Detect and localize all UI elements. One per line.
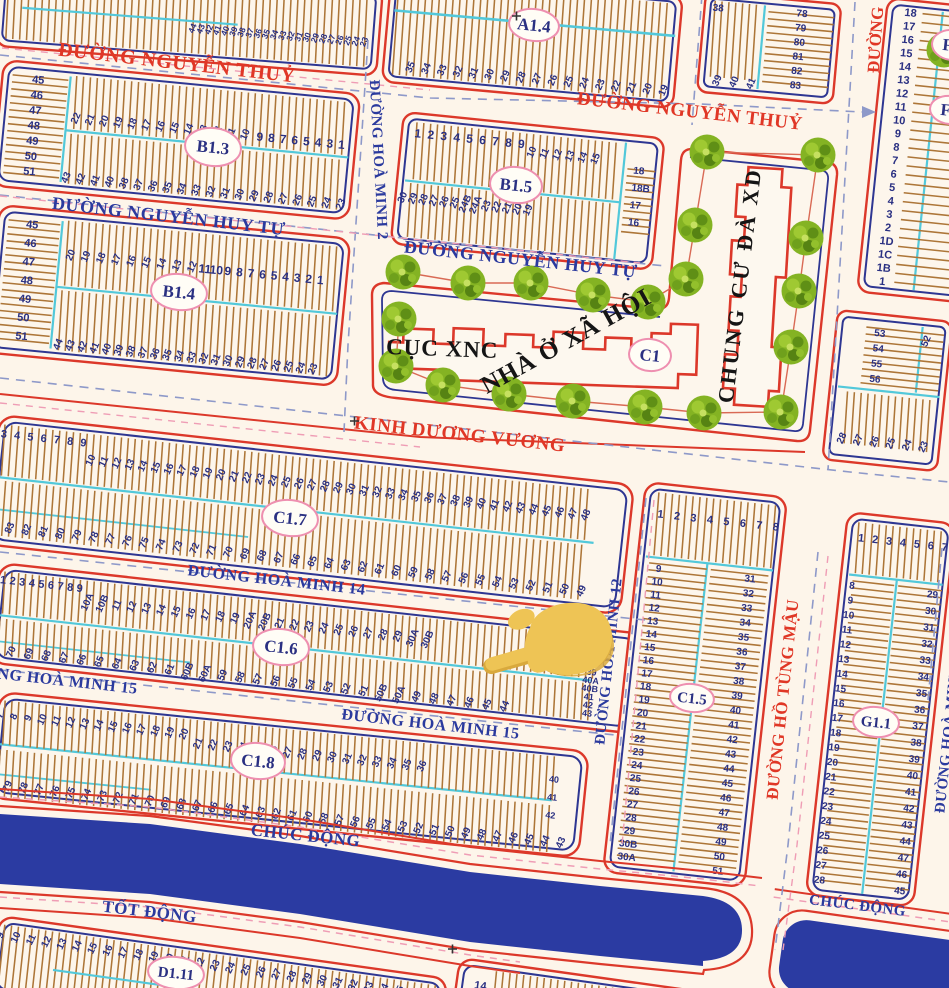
svg-text:81: 81 (792, 51, 805, 63)
svg-text:54: 54 (872, 343, 885, 355)
svg-text:7: 7 (756, 519, 763, 532)
svg-text:10: 10 (842, 610, 855, 622)
svg-text:26: 26 (628, 786, 641, 798)
svg-text:30B: 30B (618, 838, 637, 851)
svg-text:13: 13 (897, 74, 910, 87)
svg-text:2: 2 (9, 575, 16, 588)
svg-text:34: 34 (739, 617, 752, 629)
svg-text:41: 41 (728, 720, 741, 732)
svg-text:13: 13 (838, 654, 851, 666)
svg-text:18: 18 (829, 727, 842, 739)
svg-text:8: 8 (772, 521, 779, 534)
svg-text:C1.8: C1.8 (240, 750, 275, 772)
svg-text:A1.4: A1.4 (516, 14, 552, 36)
svg-text:1: 1 (879, 276, 886, 289)
svg-text:42: 42 (726, 734, 739, 746)
svg-text:1: 1 (857, 532, 864, 545)
svg-text:C1.7: C1.7 (272, 507, 308, 529)
svg-text:31: 31 (744, 573, 757, 585)
svg-text:21: 21 (825, 772, 838, 784)
svg-text:47: 47 (718, 807, 731, 819)
svg-text:83: 83 (789, 80, 802, 92)
svg-text:2: 2 (673, 510, 680, 523)
svg-text:36: 36 (736, 646, 749, 658)
svg-text:8: 8 (66, 582, 73, 595)
svg-text:1C: 1C (877, 248, 892, 261)
svg-text:F1: F1 (942, 35, 949, 56)
svg-text:33: 33 (919, 655, 932, 667)
svg-text:C1.6: C1.6 (263, 636, 298, 658)
svg-text:27: 27 (626, 799, 639, 811)
svg-text:G1.1: G1.1 (860, 714, 892, 733)
svg-text:13: 13 (647, 616, 660, 628)
svg-text:80: 80 (793, 37, 806, 49)
svg-text:19: 19 (638, 694, 651, 706)
svg-text:B1.5: B1.5 (499, 174, 533, 196)
svg-text:5: 5 (723, 516, 730, 529)
svg-text:82: 82 (791, 66, 804, 78)
svg-text:6: 6 (40, 433, 47, 446)
svg-text:C1.5: C1.5 (676, 690, 707, 709)
svg-text:51: 51 (23, 165, 36, 178)
svg-text:40: 40 (729, 705, 742, 717)
svg-text:47: 47 (22, 256, 35, 269)
svg-text:11: 11 (894, 101, 907, 114)
svg-text:36: 36 (914, 704, 927, 716)
svg-text:37: 37 (734, 661, 747, 673)
svg-text:46: 46 (720, 793, 733, 805)
svg-text:56: 56 (869, 374, 882, 386)
svg-text:17: 17 (831, 713, 844, 725)
svg-text:46: 46 (30, 89, 43, 102)
svg-text:10: 10 (893, 114, 906, 127)
svg-text:7: 7 (53, 434, 60, 447)
svg-text:3: 3 (886, 209, 893, 222)
svg-text:28: 28 (625, 812, 638, 824)
svg-text:17: 17 (902, 20, 915, 33)
svg-text:20: 20 (636, 707, 649, 719)
svg-text:1B: 1B (876, 262, 891, 275)
svg-text:39: 39 (731, 690, 744, 702)
svg-text:23: 23 (821, 801, 834, 813)
svg-text:44: 44 (723, 763, 736, 775)
svg-text:25: 25 (629, 773, 642, 785)
svg-text:15: 15 (644, 642, 657, 654)
svg-text:16: 16 (627, 217, 640, 229)
svg-text:51: 51 (15, 330, 28, 343)
svg-text:38: 38 (712, 3, 725, 15)
svg-text:11: 11 (650, 590, 662, 602)
svg-text:35: 35 (737, 632, 750, 644)
svg-text:45: 45 (32, 74, 45, 87)
svg-text:55: 55 (870, 358, 883, 370)
svg-text:41: 41 (904, 787, 917, 799)
svg-text:18: 18 (633, 165, 646, 177)
svg-text:43: 43 (582, 708, 593, 719)
svg-text:48: 48 (20, 274, 33, 287)
svg-text:46: 46 (895, 869, 908, 881)
svg-text:7: 7 (57, 580, 64, 593)
svg-text:18: 18 (639, 681, 652, 693)
svg-text:F1: F1 (940, 100, 949, 121)
svg-text:6: 6 (890, 168, 897, 181)
svg-text:50: 50 (713, 851, 726, 863)
svg-text:11: 11 (841, 624, 853, 636)
svg-text:CỤC XNC: CỤC XNC (386, 334, 499, 363)
svg-text:40: 40 (549, 774, 560, 785)
svg-text:10: 10 (209, 262, 224, 277)
svg-text:14: 14 (474, 979, 489, 988)
svg-text:39: 39 (908, 754, 921, 766)
svg-text:12: 12 (648, 603, 661, 615)
svg-text:34: 34 (917, 671, 930, 683)
svg-text:35: 35 (915, 688, 928, 700)
svg-text:25: 25 (818, 830, 831, 842)
svg-text:3: 3 (885, 535, 892, 548)
svg-text:16: 16 (833, 698, 846, 710)
svg-text:B1.4: B1.4 (162, 281, 197, 303)
svg-text:2: 2 (884, 222, 891, 235)
svg-text:49: 49 (715, 836, 728, 848)
svg-text:5: 5 (27, 431, 34, 444)
svg-text:14: 14 (898, 61, 912, 74)
svg-text:32: 32 (921, 639, 934, 651)
svg-text:38: 38 (733, 676, 746, 688)
svg-text:6: 6 (739, 518, 746, 531)
svg-text:7: 7 (891, 155, 898, 168)
svg-text:15: 15 (834, 683, 847, 695)
svg-text:5: 5 (888, 182, 895, 195)
svg-text:26: 26 (816, 845, 829, 857)
svg-text:42: 42 (545, 810, 556, 821)
svg-text:37: 37 (912, 721, 925, 733)
svg-text:47: 47 (897, 852, 910, 864)
svg-text:9: 9 (80, 437, 87, 450)
svg-text:19: 19 (828, 742, 841, 754)
svg-text:20: 20 (826, 757, 839, 769)
svg-text:5: 5 (913, 538, 920, 551)
svg-text:16: 16 (642, 655, 655, 667)
svg-text:78: 78 (796, 8, 809, 20)
svg-text:49: 49 (18, 293, 31, 306)
svg-text:17: 17 (641, 668, 654, 680)
svg-text:24: 24 (820, 816, 833, 828)
svg-text:8: 8 (66, 436, 73, 449)
svg-text:9: 9 (76, 583, 83, 596)
svg-text:21: 21 (635, 721, 648, 733)
svg-text:29: 29 (623, 825, 636, 837)
svg-text:41: 41 (547, 792, 558, 803)
svg-text:3: 3 (18, 576, 25, 589)
svg-text:12: 12 (839, 639, 852, 651)
svg-text:2: 2 (871, 534, 878, 547)
svg-text:50: 50 (17, 311, 30, 324)
svg-text:45: 45 (721, 778, 734, 790)
svg-text:10: 10 (651, 576, 664, 588)
svg-text:50: 50 (24, 150, 37, 163)
svg-text:6: 6 (47, 579, 54, 592)
svg-text:38: 38 (910, 737, 923, 749)
svg-text:49: 49 (26, 135, 39, 148)
svg-text:47: 47 (29, 104, 42, 117)
svg-text:C1: C1 (639, 345, 662, 366)
svg-text:1: 1 (657, 508, 664, 521)
svg-text:B1.3: B1.3 (196, 136, 230, 158)
svg-text:28: 28 (813, 875, 826, 887)
svg-text:43: 43 (901, 820, 914, 832)
svg-text:3: 3 (0, 428, 7, 441)
svg-text:1D: 1D (879, 235, 894, 248)
svg-text:6: 6 (927, 540, 934, 553)
svg-text:18: 18 (904, 7, 917, 20)
svg-text:17: 17 (629, 200, 642, 212)
svg-text:46: 46 (24, 237, 37, 250)
svg-text:16: 16 (901, 34, 914, 47)
svg-text:15: 15 (900, 47, 913, 60)
svg-text:27: 27 (815, 860, 828, 872)
svg-text:33: 33 (741, 603, 754, 615)
svg-text:22: 22 (823, 786, 836, 798)
svg-text:43: 43 (724, 749, 737, 761)
svg-text:79: 79 (795, 23, 808, 35)
svg-text:14: 14 (645, 629, 658, 641)
svg-text:3: 3 (690, 512, 697, 525)
svg-text:12: 12 (895, 87, 908, 100)
svg-text:9: 9 (894, 128, 901, 141)
svg-text:53: 53 (874, 328, 887, 340)
svg-text:8: 8 (893, 141, 900, 154)
svg-text:40: 40 (906, 770, 919, 782)
svg-text:14: 14 (836, 669, 849, 681)
svg-text:24: 24 (631, 760, 644, 772)
svg-text:48: 48 (716, 822, 729, 834)
svg-text:31: 31 (923, 622, 936, 634)
svg-text:44: 44 (899, 836, 912, 848)
svg-text:32: 32 (742, 588, 755, 600)
svg-text:18B: 18B (631, 183, 650, 196)
svg-text:22: 22 (634, 734, 647, 746)
svg-text:48: 48 (27, 120, 40, 133)
svg-text:5: 5 (38, 578, 45, 591)
svg-text:42: 42 (903, 803, 916, 815)
svg-text:45: 45 (26, 219, 39, 232)
svg-text:45: 45 (894, 885, 907, 897)
svg-text:23: 23 (632, 747, 645, 759)
